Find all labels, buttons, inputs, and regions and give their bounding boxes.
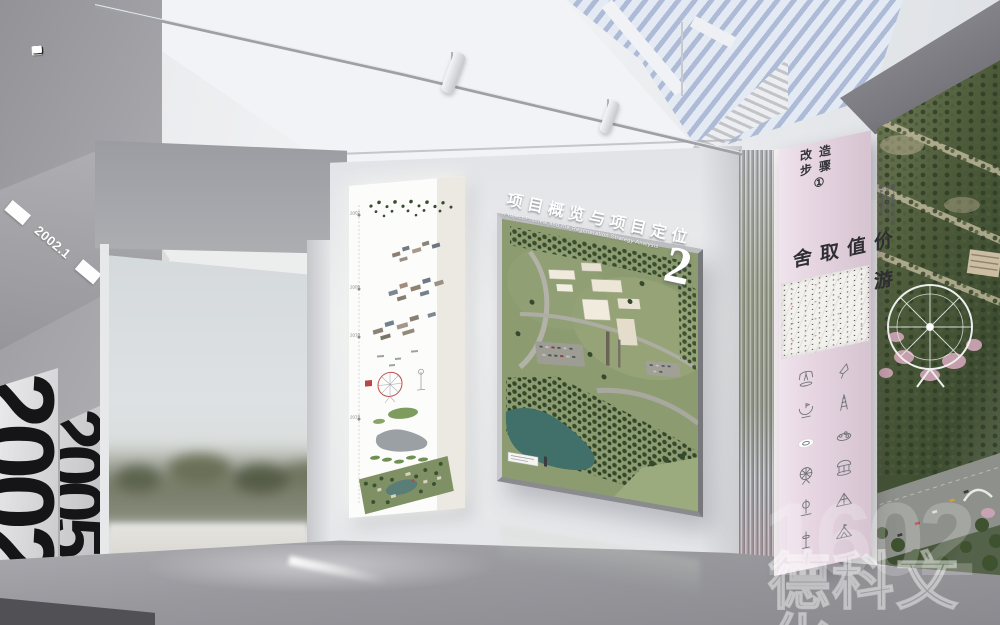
track-lighting xyxy=(0,0,1000,625)
exhibition-hall-render: 8.1 2002.1 1952.1 2002 2005 xyxy=(0,0,1000,625)
suspension-cable xyxy=(681,22,683,96)
